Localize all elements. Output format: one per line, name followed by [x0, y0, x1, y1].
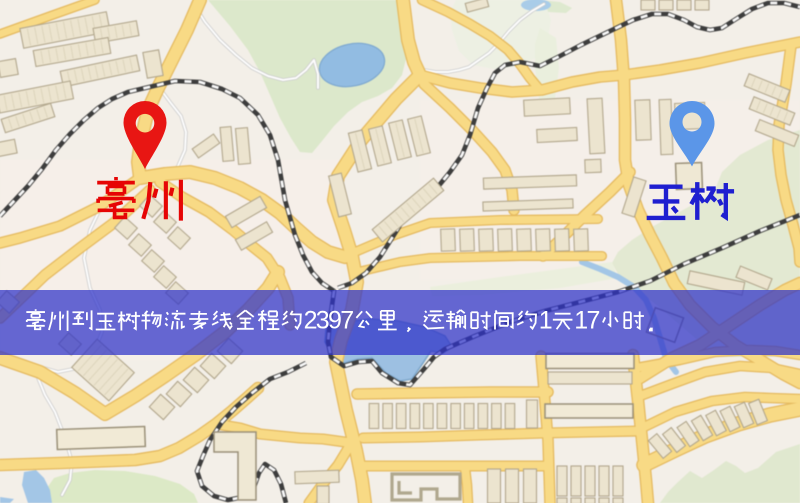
svg-text:7: 7 — [587, 307, 601, 335]
svg-text:1: 1 — [539, 307, 553, 335]
svg-text:7: 7 — [340, 307, 354, 335]
